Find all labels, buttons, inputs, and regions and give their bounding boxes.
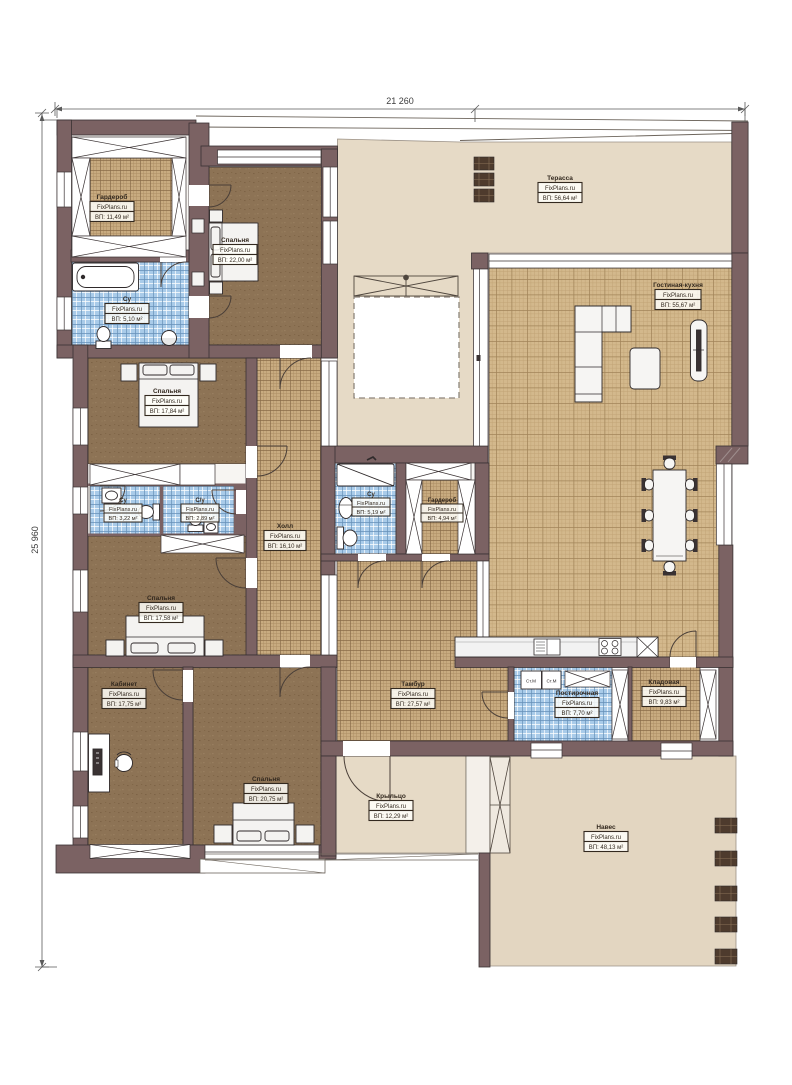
svg-text:Терасса: Терасса	[547, 175, 573, 182]
svg-text:ВП: 20,75 м²: ВП: 20,75 м²	[249, 797, 283, 803]
svg-text:ВП: 16,10 м²: ВП: 16,10 м²	[268, 544, 302, 550]
svg-text:Су: Су	[119, 498, 127, 504]
svg-text:Су: Су	[367, 492, 375, 498]
svg-text:FixPlans.ru: FixPlans.ru	[591, 835, 621, 841]
svg-text:FixPlans.ru: FixPlans.ru	[270, 534, 300, 540]
svg-text:Спальня: Спальня	[252, 776, 280, 783]
svg-text:FixPlans.ru: FixPlans.ru	[649, 690, 679, 696]
svg-text:FixPlans.ru: FixPlans.ru	[376, 804, 406, 810]
svg-text:Ст.М: Ст.М	[546, 679, 556, 684]
svg-text:Гостиная-кухня: Гостиная-кухня	[653, 282, 703, 289]
svg-text:Постирочная: Постирочная	[556, 690, 598, 697]
svg-text:Гардероб: Гардероб	[97, 193, 128, 201]
svg-text:FixPlans.ru: FixPlans.ru	[112, 307, 142, 313]
svg-text:Су: Су	[123, 296, 132, 303]
svg-text:FixPlans.ru: FixPlans.ru	[109, 507, 137, 513]
svg-text:Ст.М: Ст.М	[526, 679, 536, 684]
svg-text:FixPlans.ru: FixPlans.ru	[152, 399, 182, 405]
svg-text:FixPlans.ru: FixPlans.ru	[663, 293, 693, 299]
svg-text:ВП: 11,49 м²: ВП: 11,49 м²	[95, 215, 129, 221]
svg-text:ВП: 48,13 м²: ВП: 48,13 м²	[589, 845, 623, 851]
svg-text:ВП: 4,94 м²: ВП: 4,94 м²	[427, 516, 456, 522]
svg-text:21 260: 21 260	[386, 96, 414, 106]
svg-text:FixPlans.ru: FixPlans.ru	[428, 507, 456, 513]
svg-text:ВП: 3,22 м²: ВП: 3,22 м²	[108, 516, 137, 522]
svg-text:FixPlans.ru: FixPlans.ru	[398, 692, 428, 698]
svg-text:Крыльцо: Крыльцо	[376, 793, 406, 800]
svg-text:FixPlans.ru: FixPlans.ru	[545, 186, 575, 192]
svg-text:FixPlans.ru: FixPlans.ru	[97, 205, 127, 211]
svg-text:ВП: 17,75 м²: ВП: 17,75 м²	[107, 702, 141, 708]
svg-text:FixPlans.ru: FixPlans.ru	[146, 606, 176, 612]
svg-text:ВП: 17,84 м²: ВП: 17,84 м²	[150, 409, 184, 415]
svg-text:ВП: 5,10 м²: ВП: 5,10 м²	[111, 317, 142, 323]
svg-text:ВП: 9,83 м²: ВП: 9,83 м²	[648, 700, 679, 706]
svg-text:25 960: 25 960	[30, 526, 40, 554]
svg-text:ВП: 7,70 м²: ВП: 7,70 м²	[561, 711, 592, 717]
svg-text:Гардероб: Гардероб	[428, 497, 457, 504]
svg-text:ВП: 17,58 м²: ВП: 17,58 м²	[144, 616, 178, 622]
svg-text:ВП: 5,19 м²: ВП: 5,19 м²	[356, 510, 385, 516]
svg-text:Спальня: Спальня	[221, 237, 249, 244]
svg-text:Спальня: Спальня	[153, 388, 181, 395]
svg-text:Навес: Навес	[596, 824, 616, 831]
svg-text:Кабинет: Кабинет	[111, 680, 137, 688]
svg-text:ВП: 2,89 м²: ВП: 2,89 м²	[185, 516, 214, 522]
svg-text:ВП: 55,67 м²: ВП: 55,67 м²	[661, 303, 695, 309]
svg-text:Тамбур: Тамбур	[401, 680, 425, 688]
svg-text:С/у: С/у	[195, 498, 205, 504]
svg-text:ВП: 12,29 м²: ВП: 12,29 м²	[374, 814, 408, 820]
svg-text:FixPlans.ru: FixPlans.ru	[220, 248, 250, 254]
svg-text:FixPlans.ru: FixPlans.ru	[251, 787, 281, 793]
svg-text:Холл: Холл	[277, 523, 293, 530]
svg-text:FixPlans.ru: FixPlans.ru	[562, 701, 592, 707]
svg-text:ВП: 56,64 м²: ВП: 56,64 м²	[543, 196, 577, 202]
svg-text:ВП: 27,57 м²: ВП: 27,57 м²	[396, 702, 430, 708]
svg-text:FixPlans.ru: FixPlans.ru	[186, 507, 214, 513]
svg-text:ВП: 22,00 м²: ВП: 22,00 м²	[218, 258, 252, 264]
svg-text:FixPlans.ru: FixPlans.ru	[109, 692, 139, 698]
svg-text:FixPlans.ru: FixPlans.ru	[357, 501, 385, 507]
svg-text:Кладовая: Кладовая	[648, 679, 679, 686]
svg-text:Спальня: Спальня	[147, 595, 175, 602]
